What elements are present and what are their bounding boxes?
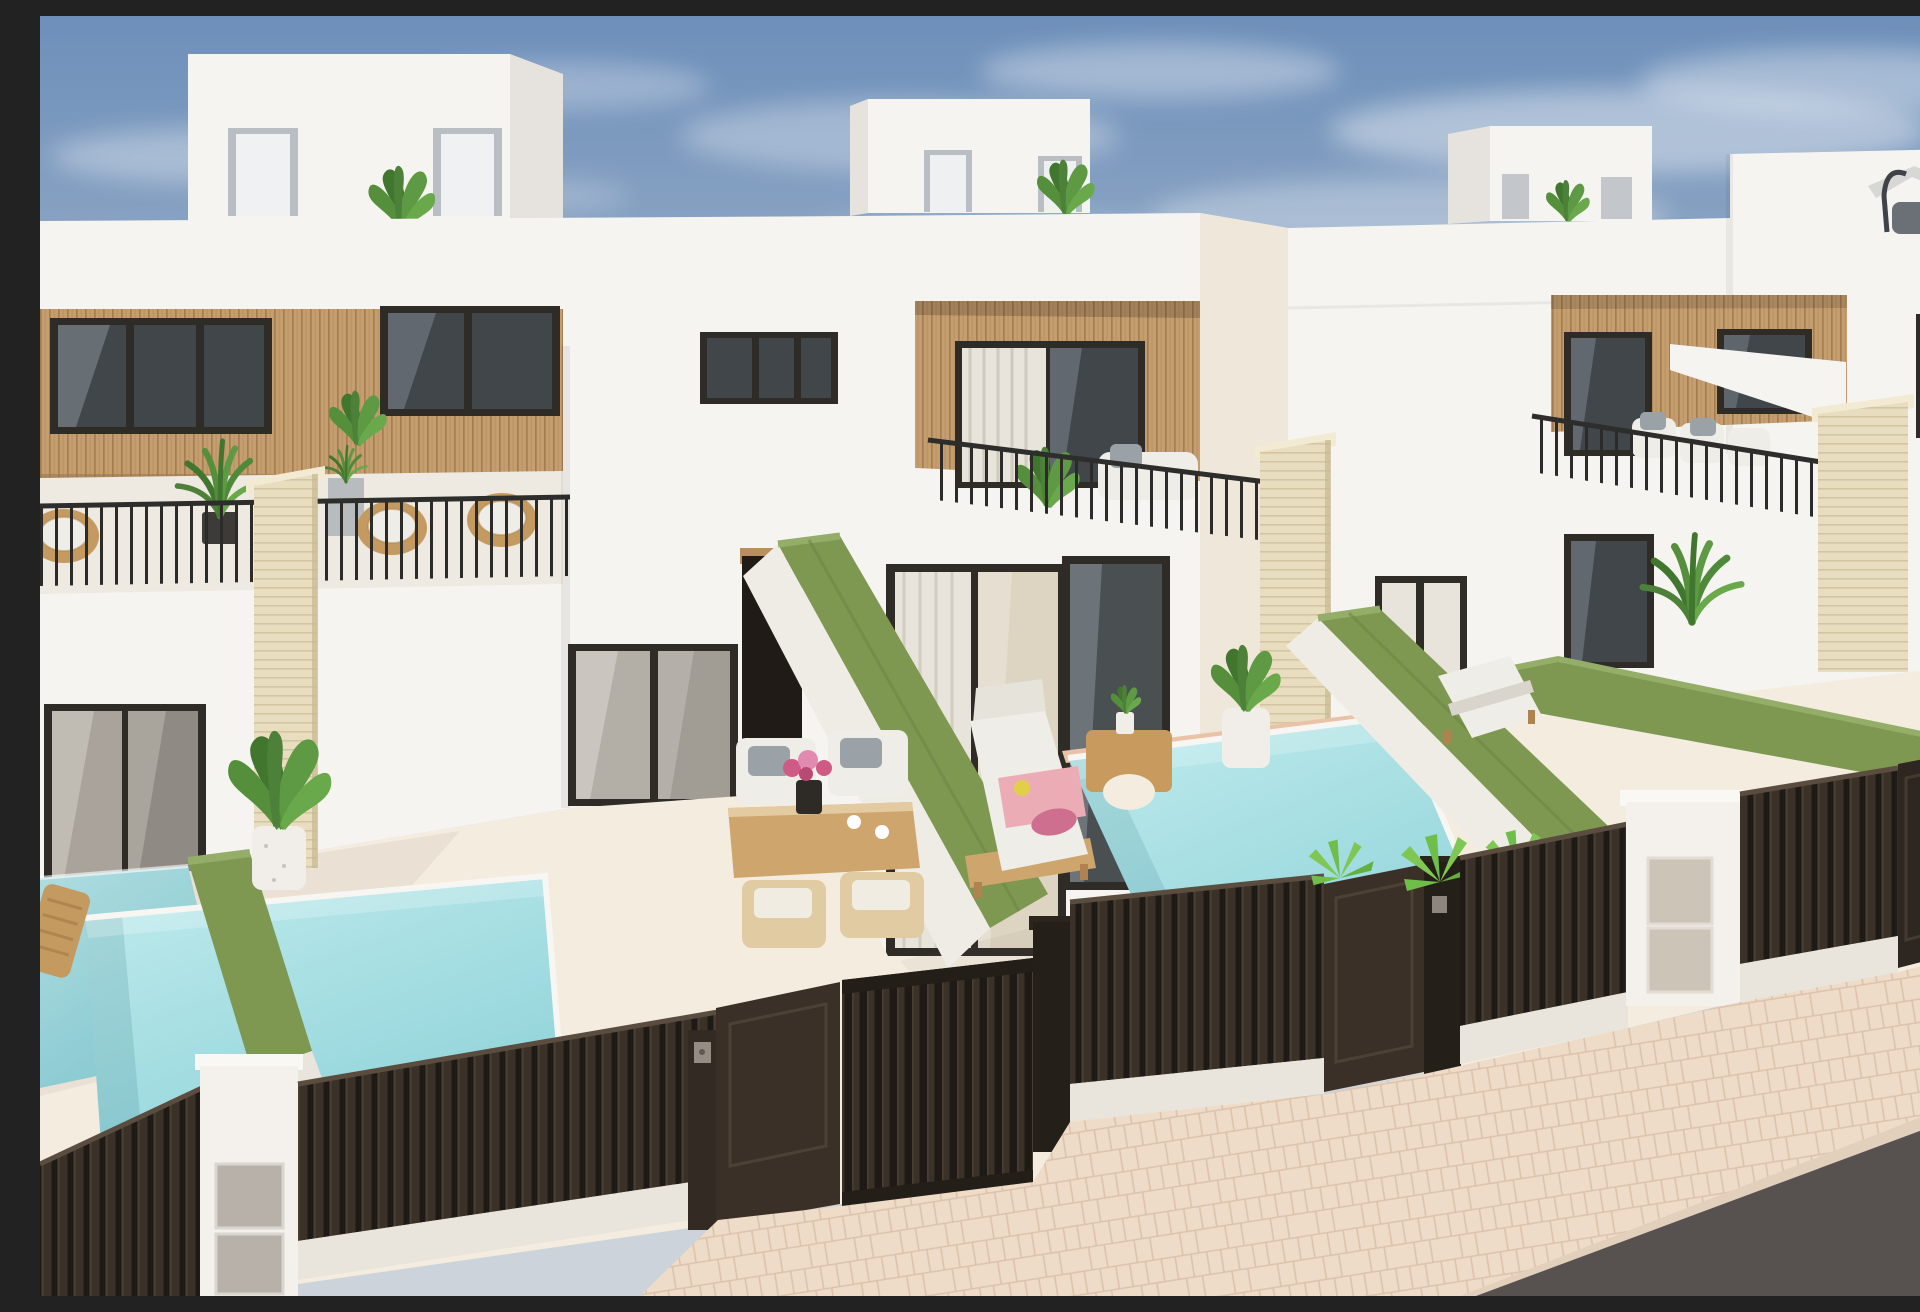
meter-door	[1648, 928, 1712, 992]
meter-door	[1648, 858, 1712, 924]
entry-pillar-left	[195, 1054, 303, 1296]
gate-unit-3	[1898, 752, 1920, 968]
unit-1-glass-door-patio	[568, 644, 738, 806]
unit-1-wood-band	[40, 306, 563, 488]
penthouse-door	[1601, 177, 1632, 219]
dining-chair-pale	[742, 880, 826, 948]
penthouse-unit-3	[1448, 126, 1652, 224]
penthouse-door	[433, 128, 502, 216]
meter-door	[216, 1164, 283, 1228]
penthouse-door	[924, 150, 972, 212]
gate-leaf-unit-2	[1324, 864, 1424, 1092]
window	[380, 306, 560, 416]
dining-chair-pale	[840, 872, 924, 938]
fence-segment	[1070, 876, 1324, 1084]
unit-1-wing-window	[700, 332, 838, 404]
penthouse-unit-2	[850, 99, 1095, 216]
unit-4-window-sliver	[1916, 314, 1920, 438]
entry-pillar-right	[1620, 790, 1746, 1006]
pedestrian-gate-unit-1	[716, 982, 840, 1226]
window	[50, 318, 272, 434]
cup	[847, 815, 861, 829]
yellow-accessory	[1014, 780, 1030, 796]
penthouse-unit-1	[188, 54, 563, 230]
dining-set	[728, 730, 924, 948]
flower-vase	[796, 780, 822, 814]
unit-3-ground-window	[1564, 534, 1654, 668]
table-plant-pot	[1116, 712, 1134, 734]
penthouse-door	[228, 128, 298, 216]
roof-lounge-chair	[1892, 202, 1920, 234]
sliding-gate-unit-1	[842, 958, 1033, 1206]
penthouse-door	[1502, 174, 1529, 219]
keypad	[1432, 896, 1447, 913]
gate-post	[1420, 856, 1464, 1076]
gate-keypad-post	[688, 1030, 716, 1230]
unit-1-glass-door-left	[44, 704, 206, 886]
render-image: New-build modern townhouses with private…	[40, 16, 1920, 1296]
scene-canvas: New-build modern townhouses with private…	[40, 16, 1920, 1296]
gate-post	[1029, 916, 1074, 1152]
travertine-pillar-unit-4	[1812, 394, 1914, 672]
dining-chair-white	[828, 730, 908, 796]
fence-segment	[1740, 768, 1898, 964]
meter-door	[216, 1234, 283, 1294]
cup	[875, 825, 889, 839]
